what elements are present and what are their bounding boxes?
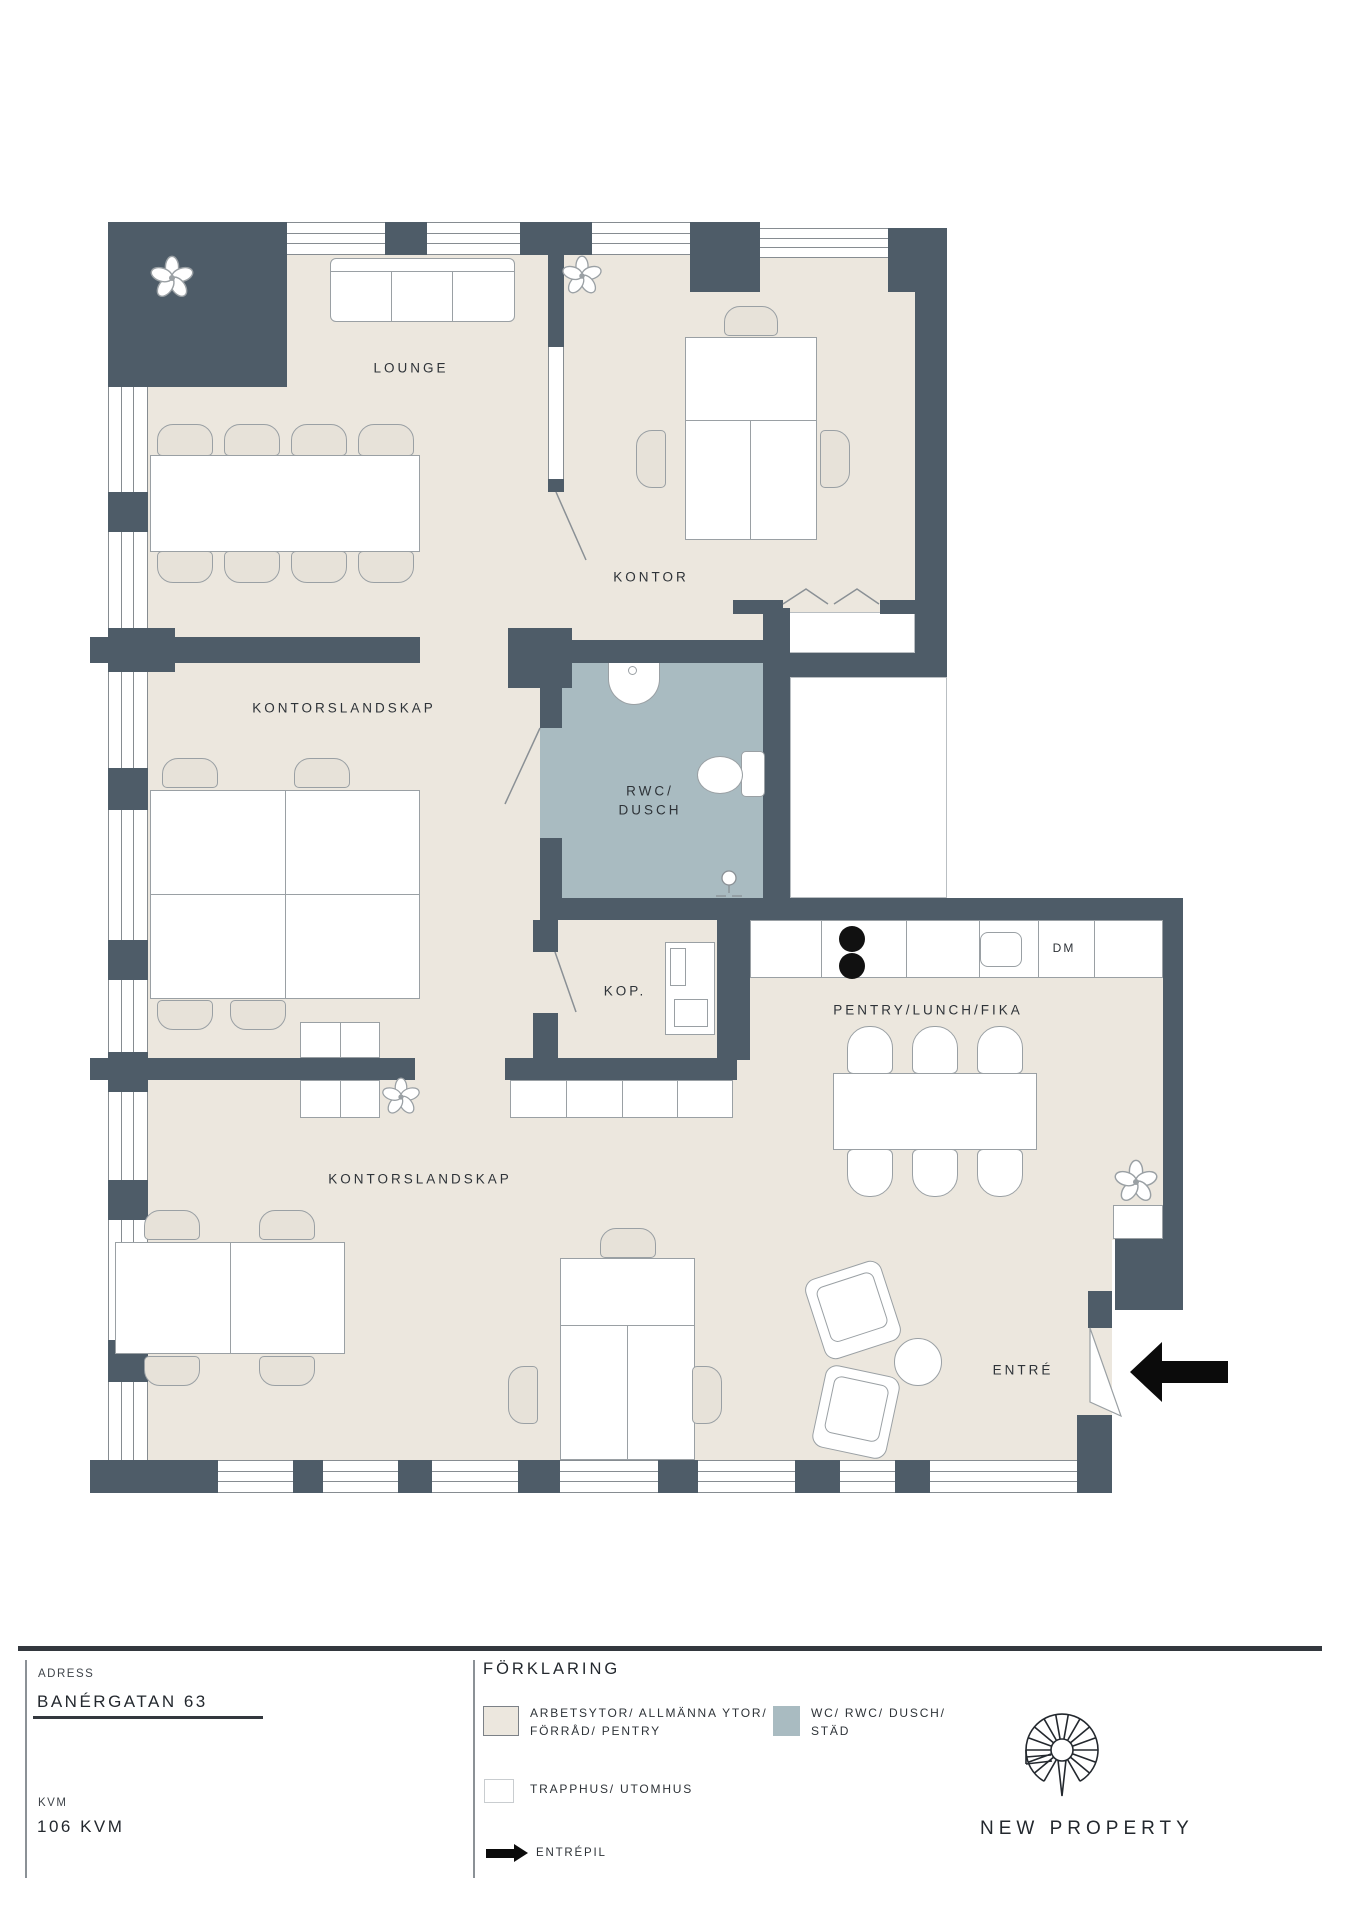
room-label-kop: KOP.: [604, 984, 647, 999]
office-chair: [259, 1210, 315, 1240]
wall-segment: [763, 653, 947, 677]
wall-segment: [1115, 1230, 1183, 1310]
cabinet-row: [300, 1080, 380, 1118]
office-chair: [600, 1228, 656, 1258]
wall-segment: [90, 1058, 415, 1080]
titleblock-left-rule: [25, 1660, 27, 1878]
desk-divider: [285, 791, 286, 894]
window-symbol: [287, 222, 385, 255]
adress-value: BANÉRGATAN 63: [37, 1692, 208, 1712]
toilet-bowl: [697, 756, 743, 794]
desk-divider: [285, 895, 286, 998]
window-symbol: [218, 1460, 293, 1493]
room-label-entre: ENTRÉ: [993, 1363, 1054, 1378]
chair: [157, 424, 213, 456]
brand-logo-spiral-stair-icon: [1022, 1704, 1102, 1804]
titleblock-mid-rule: [473, 1660, 475, 1878]
wall-segment: [895, 1460, 930, 1493]
wall-segment: [540, 838, 562, 900]
side-table: [894, 1338, 942, 1386]
wall-segment: [520, 222, 592, 255]
legend-label-wet-line2: STÄD: [811, 1724, 850, 1738]
office-chair: [508, 1366, 538, 1424]
sofa-back-line: [331, 271, 514, 272]
entry-arrow-icon: [1130, 1342, 1228, 1402]
conference-table: [150, 455, 420, 552]
chair: [847, 1026, 893, 1074]
office-chair: [230, 1000, 286, 1030]
sink-tap: [628, 666, 637, 675]
wall-segment: [108, 222, 287, 387]
kitchen-sink: [980, 932, 1022, 967]
counter-divider: [821, 921, 822, 977]
sofa-seat-line: [391, 271, 392, 321]
chair: [157, 551, 213, 583]
desk-group: [150, 894, 420, 999]
window-symbol: [698, 1460, 795, 1493]
window-symbol: [108, 810, 148, 940]
wall-segment: [108, 628, 175, 672]
wall-segment: [548, 255, 564, 347]
legend-swatch-stairs: [484, 1779, 514, 1803]
adress-underline: [33, 1716, 263, 1719]
desk-divider: [230, 1243, 231, 1353]
legend-label-stairs: TRAPPHUS/ UTOMHUS: [530, 1782, 693, 1796]
wall-segment: [108, 940, 148, 980]
chair: [224, 551, 280, 583]
desk-group: [150, 790, 420, 895]
window-symbol: [108, 1382, 148, 1460]
office-chair: [157, 1000, 213, 1030]
window-symbol: [108, 532, 148, 628]
titleblock-divider: [18, 1646, 1322, 1651]
window-symbol: [108, 1092, 148, 1180]
lunch-table: [833, 1073, 1037, 1150]
legend-arrow-head: [514, 1844, 528, 1862]
chair: [977, 1149, 1023, 1197]
room-label-kontorslandskap-lower: KONTORSLANDSKAP: [328, 1172, 512, 1187]
window-symbol: [427, 222, 520, 255]
office-chair: [724, 306, 778, 336]
desk: [627, 1325, 695, 1460]
window-symbol: [432, 1460, 518, 1493]
legend-label-areas-line2: FÖRRÅD/ PENTRY: [530, 1724, 661, 1738]
kitchen-counter: [750, 920, 1163, 978]
legend-arrow-icon: [486, 1849, 514, 1858]
wall-segment: [505, 1058, 737, 1080]
chair: [912, 1026, 958, 1074]
desk: [750, 420, 817, 540]
desk: [560, 1325, 628, 1460]
office-chair: [144, 1210, 200, 1240]
counter-divider: [1094, 921, 1095, 977]
copier-detail: [674, 999, 708, 1027]
floorplan-page: LOUNGE KONTOR KONTORSLANDSKAP RWC/ DUSCH…: [0, 0, 1358, 1920]
wall-segment: [880, 600, 915, 614]
office-chair: [144, 1356, 200, 1386]
window-symbol: [930, 1460, 1077, 1493]
wall-segment: [915, 228, 947, 663]
kvm-value: 106 KVM: [37, 1817, 124, 1837]
legend-swatch-areas: [483, 1706, 519, 1736]
room-label-lounge: LOUNGE: [373, 361, 448, 376]
wall-segment: [385, 222, 427, 255]
chair: [358, 551, 414, 583]
legend-swatch-wet: [773, 1706, 800, 1736]
chair: [358, 424, 414, 456]
chair: [847, 1149, 893, 1197]
sofa-seat-line: [452, 271, 453, 321]
wall-segment: [733, 600, 783, 614]
chair: [224, 424, 280, 456]
cabinet-row: [300, 1022, 380, 1058]
office-chair: [636, 430, 666, 488]
toilet-tank: [741, 751, 765, 797]
cabinet-divider: [622, 1081, 623, 1117]
desk-group: [115, 1242, 345, 1354]
room-label-pentry: PENTRY/LUNCH/FIKA: [833, 1003, 1023, 1018]
cabinet-divider: [677, 1081, 678, 1117]
cabinet-divider: [340, 1023, 341, 1057]
office-chair: [259, 1356, 315, 1386]
wall-segment: [293, 1460, 323, 1493]
wall-segment: [1077, 1460, 1112, 1493]
wall-segment: [108, 768, 148, 810]
armchair-seat: [823, 1375, 890, 1443]
wall-segment: [1163, 898, 1183, 1240]
office-chair: [692, 1366, 722, 1424]
legend-label-wet-line1: WC/ RWC/ DUSCH/: [811, 1706, 946, 1720]
cabinet-row: [510, 1080, 733, 1118]
wall-segment: [533, 920, 558, 952]
cabinet: [1113, 1205, 1163, 1239]
wall-segment: [108, 492, 148, 532]
wall-segment: [548, 479, 564, 492]
copier: [665, 942, 715, 1035]
counter-divider: [906, 921, 907, 977]
office-chair: [820, 430, 850, 488]
office-chair: [294, 758, 350, 788]
desk: [560, 1258, 695, 1326]
room-label-rwc-line1: RWC/: [626, 784, 674, 799]
wall-segment: [540, 898, 1183, 920]
stove-burner: [839, 953, 865, 979]
window-symbol: [323, 1460, 398, 1493]
kvm-label: KVM: [38, 1797, 67, 1809]
adress-label: ADRESS: [38, 1668, 94, 1680]
wall-segment: [518, 1460, 560, 1493]
window-symbol: [592, 222, 690, 255]
room-label-rwc-line2: DUSCH: [618, 803, 681, 818]
cabinet-divider: [340, 1081, 341, 1117]
legend-label-entry-arrow: ENTRÉPIL: [536, 1847, 607, 1859]
wall-segment: [398, 1460, 432, 1493]
room-label-kontor: KONTOR: [613, 570, 689, 585]
chair: [291, 424, 347, 456]
room-label-kontorslandskap-upper: KONTORSLANDSKAP: [252, 701, 436, 716]
sofa: [330, 258, 515, 322]
wall-segment: [508, 640, 770, 663]
window-symbol: [840, 1460, 895, 1493]
wall-segment: [690, 222, 760, 292]
copier-detail: [670, 948, 686, 986]
glass-partition: [548, 347, 564, 479]
office-chair: [162, 758, 218, 788]
window-symbol: [760, 228, 888, 258]
label-dishwasher: DM: [1053, 941, 1076, 955]
cabinet-divider: [566, 1081, 567, 1117]
chair: [912, 1149, 958, 1197]
window-symbol: [108, 387, 148, 492]
wall-segment: [717, 920, 750, 1060]
desk: [685, 337, 817, 421]
stairwell-area: [790, 677, 947, 898]
wall-segment: [795, 1460, 840, 1493]
armchair-seat: [815, 1270, 890, 1344]
wall-segment: [533, 1013, 558, 1058]
wall-segment: [658, 1460, 698, 1493]
legend-title: FÖRKLARING: [483, 1660, 620, 1679]
brand-name: NEW PROPERTY: [980, 1818, 1194, 1840]
wall-segment: [540, 663, 562, 728]
counter-divider: [1038, 921, 1039, 977]
legend-label-areas-line1: ARBETSYTOR/ ALLMÄNNA YTOR/: [530, 1706, 768, 1720]
window-symbol: [560, 1460, 658, 1493]
desk: [685, 420, 751, 540]
wall-segment: [108, 1180, 148, 1220]
chair: [291, 551, 347, 583]
chair: [977, 1026, 1023, 1074]
wall-segment: [90, 1460, 218, 1493]
window-symbol: [108, 980, 148, 1052]
stove-burner: [839, 926, 865, 952]
window-symbol: [108, 672, 148, 768]
wall-segment: [1088, 1291, 1112, 1328]
